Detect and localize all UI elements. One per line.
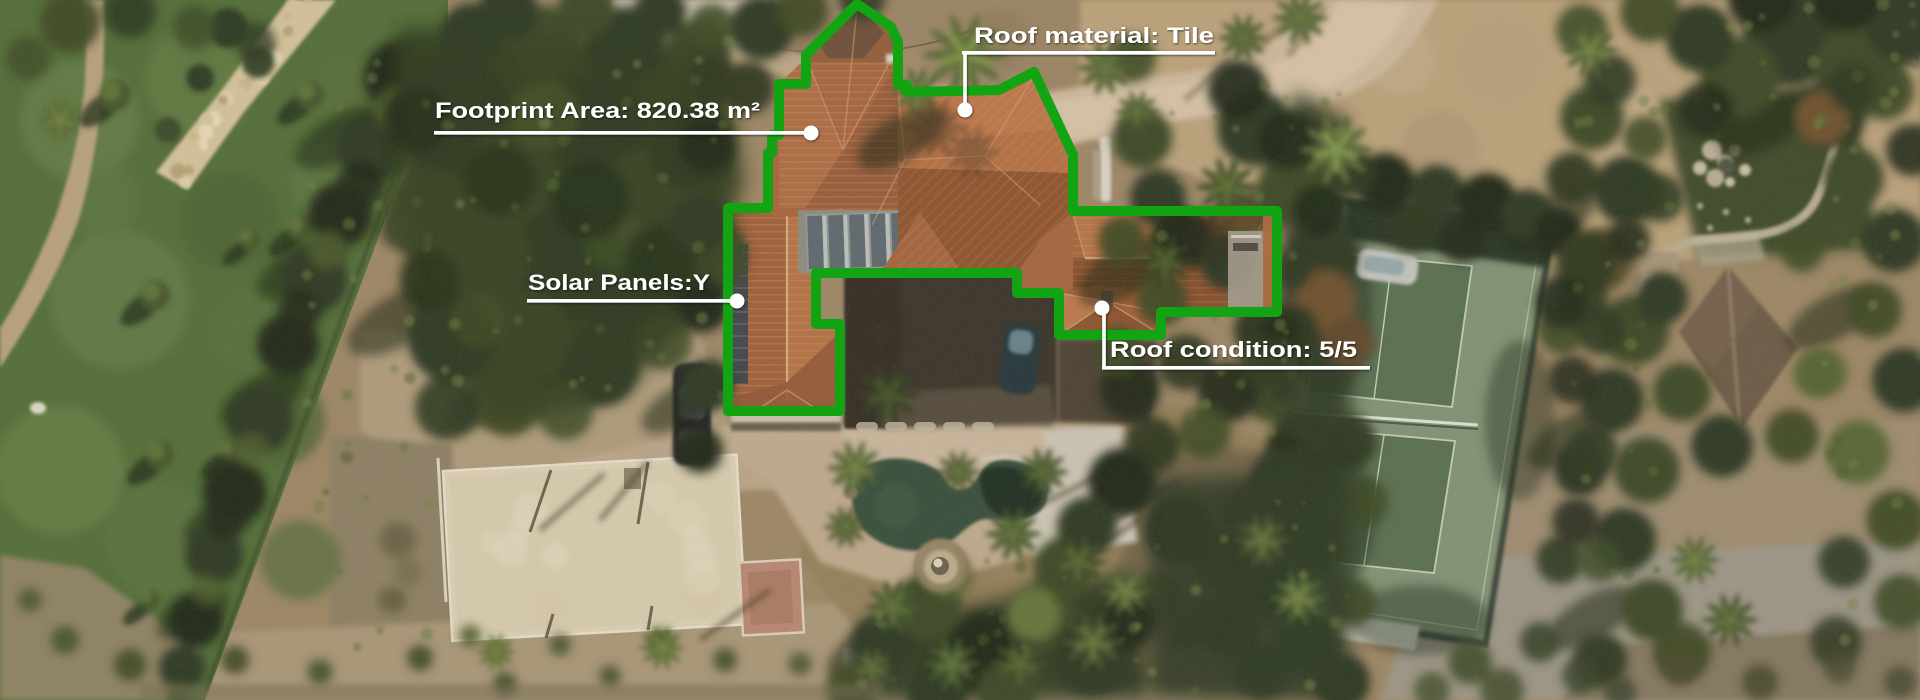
svg-text:Roof material: Tile: Roof material: Tile bbox=[974, 23, 1214, 48]
svg-text:Solar Panels:Y: Solar Panels:Y bbox=[528, 270, 710, 295]
svg-text:Roof condition: 5/5: Roof condition: 5/5 bbox=[1110, 337, 1357, 362]
svg-text:Footprint Area: 820.38 m²: Footprint Area: 820.38 m² bbox=[435, 98, 761, 123]
